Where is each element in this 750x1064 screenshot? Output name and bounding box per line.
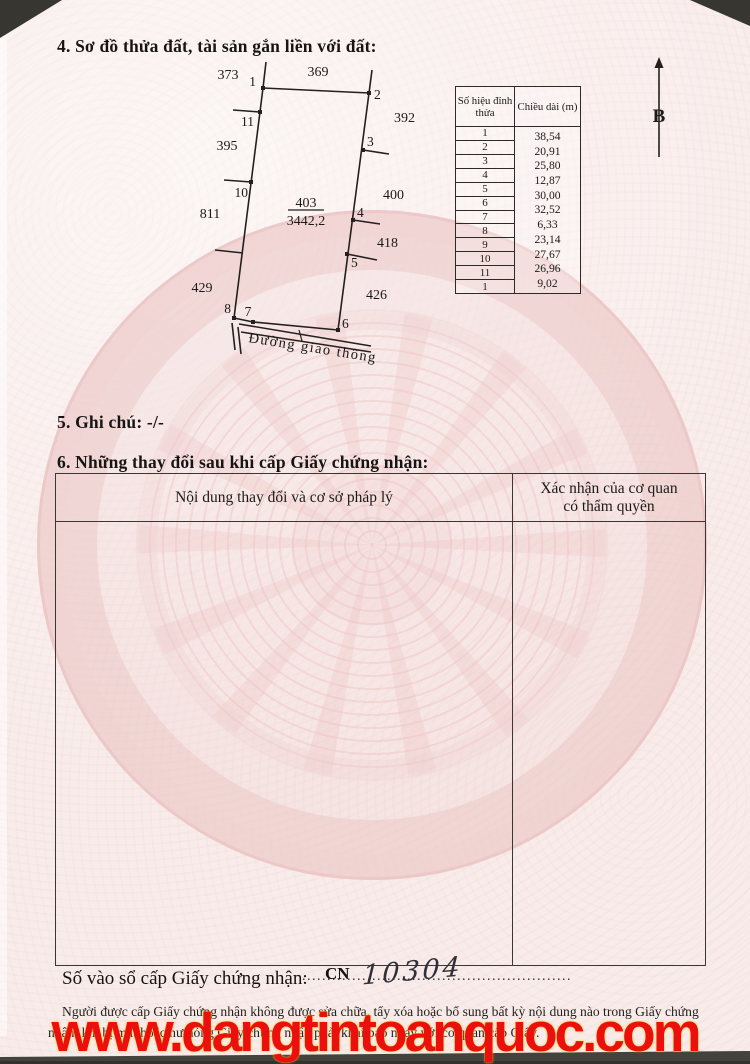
north-arrow-head bbox=[655, 57, 664, 68]
vertex-dot-11 bbox=[258, 110, 262, 114]
vertex-cell: 7 bbox=[456, 211, 514, 225]
parcel-area: 3442,2 bbox=[287, 214, 326, 229]
tick-10 bbox=[224, 180, 251, 182]
length-value: 25,80 bbox=[534, 159, 560, 172]
tick-11 bbox=[233, 110, 260, 112]
length-value: 12,87 bbox=[534, 174, 560, 187]
vertex-cell: 1 bbox=[456, 280, 514, 293]
vertex-dot-1 bbox=[261, 86, 265, 90]
vertex-cell: 8 bbox=[456, 224, 514, 238]
length-value: 23,14 bbox=[534, 233, 560, 246]
length-values: 38,54 20,91 25,80 12,87 30,00 32,52 6,33… bbox=[515, 127, 580, 293]
changes-col2-body bbox=[513, 522, 705, 965]
parcel-392: 392 bbox=[394, 111, 415, 126]
north-arrow: B bbox=[638, 55, 682, 165]
parcel-429: 429 bbox=[192, 281, 213, 296]
length-column: Chiều dài (m) 38,54 20,91 25,80 12,87 30… bbox=[515, 87, 580, 293]
length-value: 20,91 bbox=[534, 145, 560, 158]
plot-top-edge bbox=[263, 88, 369, 93]
length-value: 26,96 bbox=[534, 262, 560, 275]
vertex-cell: 4 bbox=[456, 169, 514, 183]
parcel-400: 400 bbox=[383, 188, 404, 203]
vertex-dot-3 bbox=[361, 148, 365, 152]
vertex-label-1: 1 bbox=[249, 74, 256, 89]
changes-table-header: Nội dung thay đổi và cơ sở pháp lý Xác n… bbox=[56, 474, 705, 522]
vertex-label-4: 4 bbox=[357, 205, 364, 220]
length-value: 27,67 bbox=[534, 248, 560, 261]
vertex-dot-8 bbox=[232, 316, 236, 320]
changes-col2-header: Xác nhận của cơ quan có thẩm quyền bbox=[513, 474, 705, 521]
north-label: B bbox=[653, 106, 666, 127]
paper-left-edge bbox=[0, 36, 7, 1036]
parcel-395: 395 bbox=[217, 139, 238, 154]
vertex-cell: 9 bbox=[456, 238, 514, 252]
length-value: 32,52 bbox=[534, 203, 560, 216]
changes-table: Nội dung thay đổi và cơ sở pháp lý Xác n… bbox=[55, 473, 706, 966]
vertex-dot-4 bbox=[351, 218, 355, 222]
road-left-end-2 bbox=[238, 327, 241, 354]
vertex-label-5: 5 bbox=[351, 255, 358, 270]
parcel-418: 418 bbox=[377, 236, 398, 251]
vertex-dot-6 bbox=[336, 328, 340, 332]
vertex-label-6: 6 bbox=[342, 316, 349, 331]
changes-col2-line1: Xác nhận của cơ quan bbox=[540, 480, 677, 497]
section6-title: 6. Những thay đổi sau khi cấp Giấy chứng… bbox=[57, 452, 429, 473]
length-value: 30,00 bbox=[534, 189, 560, 202]
vertex-dot-2 bbox=[367, 91, 371, 95]
section4-title: 4. Sơ đồ thửa đất, tài sản gắn liền với … bbox=[57, 36, 377, 57]
vertex-dot-7 bbox=[251, 320, 255, 324]
tick-3 bbox=[363, 150, 389, 154]
registry-line: Số vào sổ cấp Giấy chứng nhận: .........… bbox=[62, 968, 722, 1002]
parcel-811: 811 bbox=[200, 207, 220, 222]
parcel-number: 403 bbox=[296, 196, 317, 211]
vertex-cell: 11 bbox=[456, 266, 514, 280]
tick-9 bbox=[215, 250, 243, 253]
vertex-column: Số hiệu đỉnh thửa 1 2 3 4 5 6 7 8 9 10 1… bbox=[456, 87, 515, 293]
vertex-label-2: 2 bbox=[374, 87, 381, 102]
parcel-373: 373 bbox=[218, 68, 239, 83]
vertex-cell: 3 bbox=[456, 155, 514, 169]
vertex-cell: 10 bbox=[456, 252, 514, 266]
changes-table-body bbox=[56, 522, 705, 965]
changes-col1-header: Nội dung thay đổi và cơ sở pháp lý bbox=[56, 474, 513, 521]
changes-col2-line2: có thẩm quyền bbox=[563, 498, 654, 515]
vertex-dot-5 bbox=[345, 252, 349, 256]
vertex-column-header: Số hiệu đỉnh thửa bbox=[456, 87, 514, 127]
parcel-426: 426 bbox=[366, 288, 387, 303]
vertex-label-10: 10 bbox=[235, 185, 249, 200]
vertex-cell: 2 bbox=[456, 141, 514, 155]
length-column-header: Chiều dài (m) bbox=[515, 87, 580, 127]
vertex-label-8: 8 bbox=[224, 301, 231, 316]
section5-note: 5. Ghi chú: -/- bbox=[57, 412, 164, 433]
length-value: 38,54 bbox=[534, 130, 560, 143]
vertex-label-3: 3 bbox=[367, 134, 374, 149]
vertex-label-11: 11 bbox=[241, 114, 254, 129]
vertex-dot-10 bbox=[249, 180, 253, 184]
tick-4 bbox=[353, 220, 380, 224]
changes-col1-body bbox=[56, 522, 513, 965]
registry-code: CN bbox=[325, 964, 350, 984]
parcel-369: 369 bbox=[308, 65, 329, 80]
registry-label: Số vào sổ cấp Giấy chứng nhận: bbox=[62, 968, 308, 989]
vertex-cell: 1 bbox=[456, 127, 514, 141]
vertex-label-7: 7 bbox=[245, 304, 252, 319]
vertex-length-table: Số hiệu đỉnh thửa 1 2 3 4 5 6 7 8 9 10 1… bbox=[455, 86, 581, 294]
road-left-end-1 bbox=[232, 323, 235, 350]
site-watermark: www.dangtintoanquoc.com bbox=[0, 1000, 750, 1064]
vertex-cell: 6 bbox=[456, 197, 514, 211]
plot-diagram: 1 2 11 3 10 4 5 8 7 6 373 369 392 395 40… bbox=[185, 60, 445, 370]
length-value: 6,33 bbox=[537, 218, 557, 231]
vertex-cell: 5 bbox=[456, 183, 514, 197]
length-value: 9,02 bbox=[537, 277, 557, 290]
plot-bottom-edge bbox=[234, 318, 338, 330]
